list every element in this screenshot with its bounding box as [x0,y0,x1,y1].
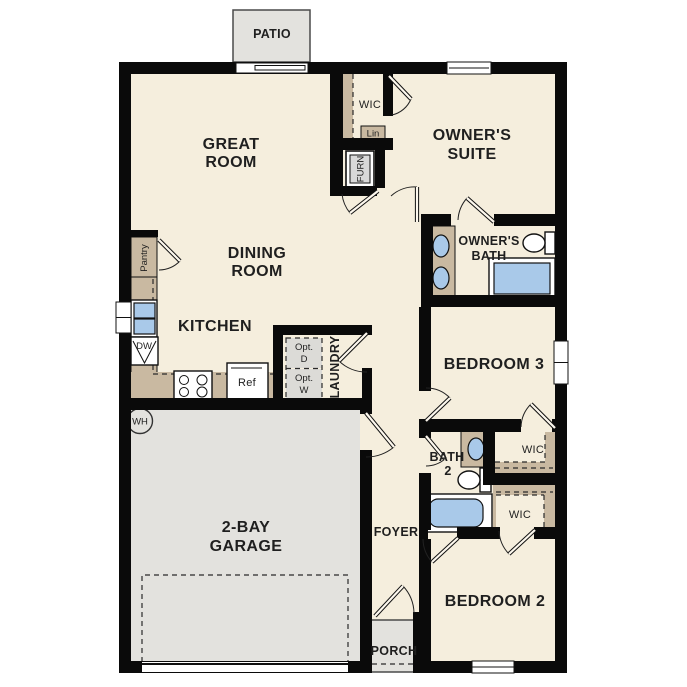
svg-text:DW: DW [136,341,152,352]
linen-label: Lin [367,129,380,140]
refrigerator: Ref [227,363,268,400]
svg-text:W: W [300,385,309,396]
owners-suite-label-1: OWNER'S [433,127,512,144]
bath2-label-2: 2 [444,464,451,478]
owners-suite-label-2: SUITE [447,146,496,163]
kitchen-sink [131,300,157,337]
great-room-label-2: ROOM [205,154,256,171]
svg-text:Opt.: Opt. [295,342,313,353]
dishwasher: DW [131,337,158,365]
svg-text:FURN: FURN [356,156,367,183]
owners-bath-label-2: BATH [472,249,507,263]
owners-suite-window [447,62,491,74]
bedroom2-label: BEDROOM 2 [445,593,546,610]
stove [174,371,212,400]
bath2-label-1: BATH [430,450,465,464]
svg-text:D: D [301,354,308,365]
great-room-label-1: GREAT [203,136,260,153]
patio-slider-door [236,63,308,73]
svg-text:Ref: Ref [238,377,257,389]
owners-bath-label-1: OWNER'S [458,234,519,248]
dining-room-label-1: DINING [228,245,286,262]
kitchen-window [116,302,131,333]
svg-text:Opt.: Opt. [295,373,313,384]
porch-label: PORCH [371,644,418,658]
bedroom2-wic-label: WIC [509,509,531,521]
svg-text:Pantry: Pantry [139,244,150,272]
water-heater: WH [128,409,153,434]
svg-text:WH: WH [132,417,148,428]
bedroom3-label: BEDROOM 3 [444,356,545,373]
bedroom3-window [554,341,568,384]
dining-room-label-2: ROOM [231,263,282,280]
garage-overhead-door [142,662,348,672]
bedroom2-window [472,661,514,673]
furnace: FURN [346,151,374,187]
owners-wic-label: WIC [359,99,381,111]
owners-wic-shelf [343,74,353,138]
owners-bath-toilet [523,232,555,254]
foyer-label: FOYER [374,525,419,539]
garage-label-2: GARAGE [210,538,283,555]
floor-plan: Pantry DW Ref Opt. D Opt. W [0,0,687,687]
patio-label: PATIO [253,27,291,41]
bath2-tub [424,494,492,532]
garage-label-1: 2-BAY [222,519,271,536]
kitchen-label: KITCHEN [178,318,252,335]
laundry-label: LAUNDRY [328,335,342,398]
bedroom3-wic-label: WIC [522,444,544,456]
owners-bath-tub [489,258,555,298]
pantry: Pantry [131,230,158,277]
